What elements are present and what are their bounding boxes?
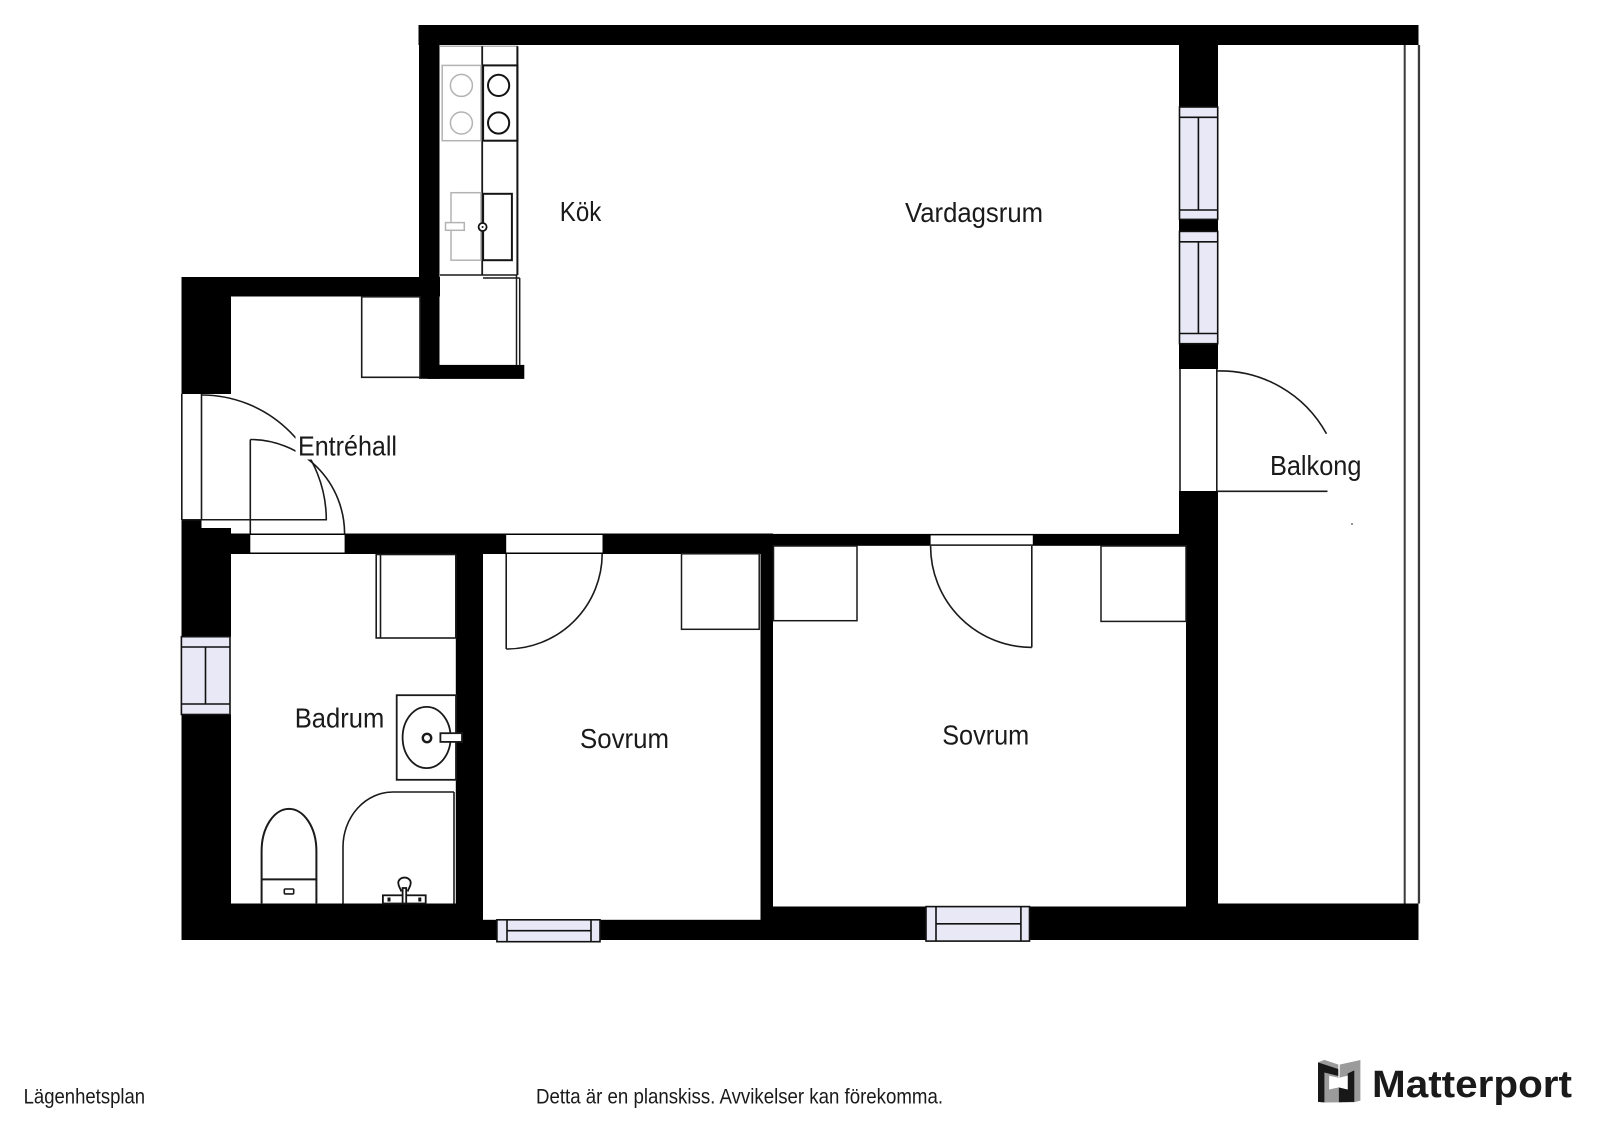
svg-text:Matterport: Matterport [1372,1064,1572,1106]
svg-text:Detta är en planskiss. Avvikel: Detta är en planskiss. Avvikelser kan fö… [536,1086,943,1109]
svg-text:Balkong: Balkong [1270,450,1362,481]
svg-text:Vardagsrum: Vardagsrum [905,197,1043,228]
svg-text:Entréhall: Entréhall [298,431,397,462]
svg-text:Badrum: Badrum [295,703,385,734]
svg-text:Lägenhetsplan: Lägenhetsplan [24,1085,146,1108]
svg-text:Kök: Kök [560,196,602,227]
svg-text:Sovrum: Sovrum [580,723,669,754]
svg-text:Sovrum: Sovrum [942,720,1029,751]
